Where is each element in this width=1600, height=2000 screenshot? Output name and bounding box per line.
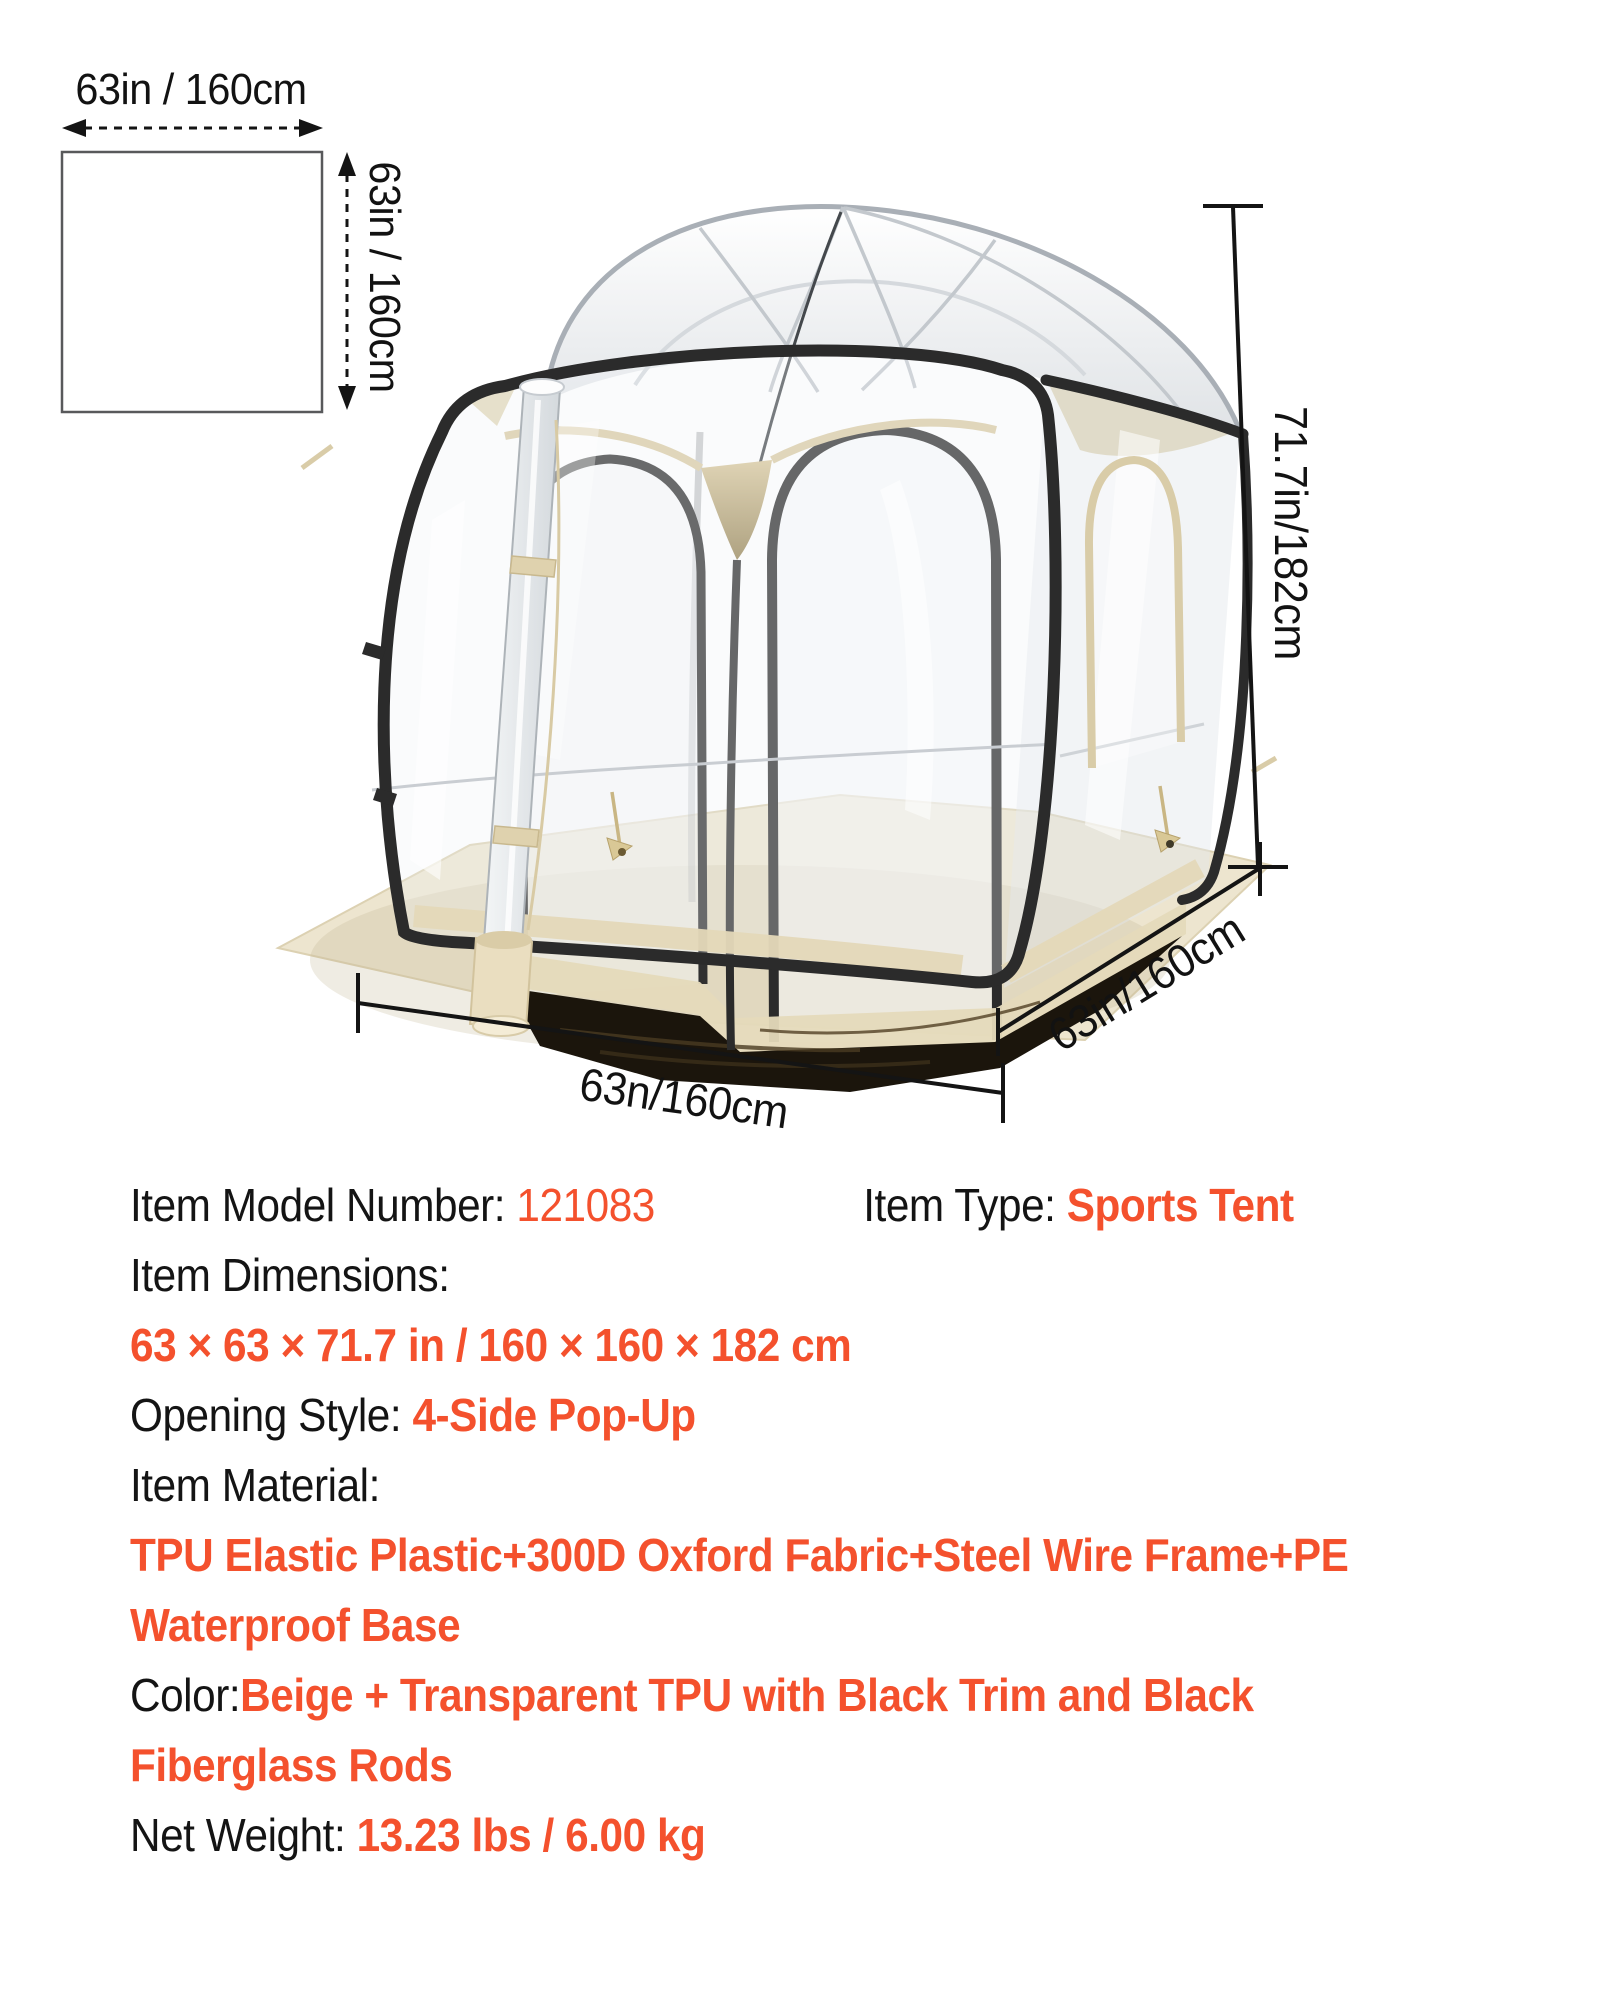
tent-front-glass [372, 351, 1056, 983]
square-width-label: 63in / 160cm [75, 65, 306, 115]
item-type-value: Sports Tent [1067, 1179, 1294, 1231]
spec-row-material-value-2: Waterproof Base [130, 1590, 1348, 1660]
spec-row-model-type: Item Model Number: 121083Item Type: Spor… [130, 1170, 1348, 1240]
spec-row-dimensions-value: 63 × 63 × 71.7 in / 160 × 160 × 182 cm [130, 1310, 1348, 1380]
spec-row-weight: Net Weight: 13.23 lbs / 6.00 kg [130, 1800, 1348, 1870]
model-number-label: Item Model Number: [130, 1179, 516, 1231]
material-label: Item Material: [130, 1459, 380, 1511]
width-arrowhead-left [62, 119, 86, 137]
spec-row-opening-style: Opening Style: 4-Side Pop-Up [130, 1380, 1348, 1450]
color-value-line1: Beige + Transparent TPU with Black Trim … [240, 1669, 1253, 1721]
spec-row-color-2: Fiberglass Rods [130, 1730, 1348, 1800]
square-height-label: 63in / 160cm [359, 161, 409, 392]
color-value-line2: Fiberglass Rods [130, 1739, 452, 1791]
dimensions-label: Item Dimensions: [130, 1249, 450, 1301]
spec-row-material-label: Item Material: [130, 1450, 1348, 1520]
right-face-arch-window [1089, 460, 1181, 768]
model-number-value: 121083 [516, 1179, 654, 1231]
door-strap-bottom [493, 826, 539, 847]
spec-row-material-value-1: TPU Elastic Plastic+300D Oxford Fabric+S… [130, 1520, 1348, 1590]
tent-height-label: 71.7in/182cm [1264, 406, 1318, 660]
spec-text-block: Item Model Number: 121083Item Type: Spor… [130, 1170, 1454, 1870]
door-strap-top [510, 556, 556, 577]
height-arrowhead-bottom [338, 386, 356, 410]
weight-label: Net Weight: [130, 1809, 357, 1861]
spec-row-color: Color:Beige + Transparent TPU with Black… [130, 1660, 1348, 1730]
model-number-pair: Item Model Number: 121083 [130, 1170, 863, 1240]
dimensions-value: 63 × 63 × 71.7 in / 160 × 160 × 182 cm [130, 1319, 851, 1371]
opening-style-value: 4-Side Pop-Up [412, 1389, 695, 1441]
width-arrowhead-right [299, 119, 323, 137]
spec-row-dimensions-label: Item Dimensions: [130, 1240, 1348, 1310]
opening-style-label: Opening Style: [130, 1389, 412, 1441]
height-arrowhead-top [338, 152, 356, 176]
door-bottom-cap [470, 938, 532, 1028]
weight-value: 13.23 lbs / 6.00 kg [357, 1809, 706, 1861]
color-label: Color: [130, 1669, 240, 1721]
size-square-diagram [62, 119, 356, 412]
material-value-line2: Waterproof Base [130, 1599, 460, 1651]
item-type-label: Item Type: [863, 1179, 1067, 1231]
material-value-line1: TPU Elastic Plastic+300D Oxford Fabric+S… [130, 1529, 1348, 1581]
product-spec-sheet: 63in / 160cm 63in / 160cm 71.7in/182cm 6… [0, 0, 1600, 2000]
